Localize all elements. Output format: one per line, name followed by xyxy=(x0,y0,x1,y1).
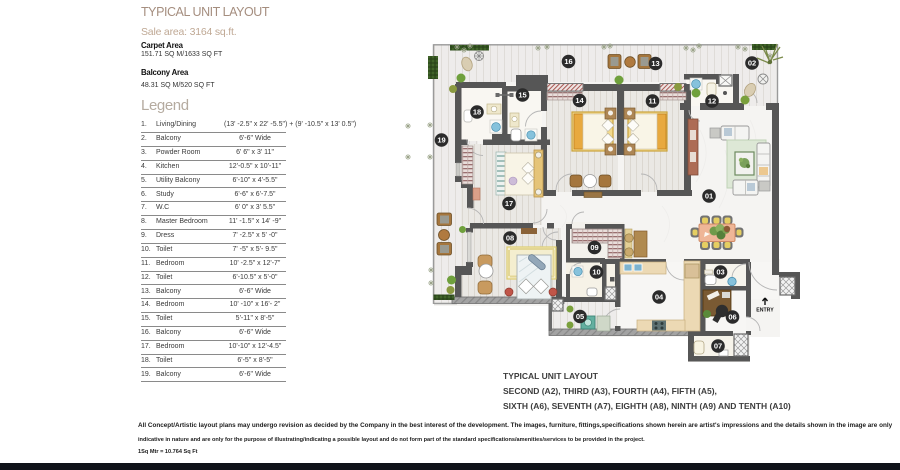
svg-text:13: 13 xyxy=(651,59,659,68)
svg-text:17: 17 xyxy=(505,199,513,208)
svg-text:05: 05 xyxy=(576,312,584,321)
svg-text:19: 19 xyxy=(437,136,445,145)
svg-text:06: 06 xyxy=(728,313,736,322)
svg-text:16: 16 xyxy=(564,57,572,66)
svg-text:11: 11 xyxy=(649,97,657,106)
svg-text:01: 01 xyxy=(705,192,713,201)
svg-text:18: 18 xyxy=(473,108,481,117)
svg-text:04: 04 xyxy=(655,293,664,302)
svg-text:12: 12 xyxy=(708,97,716,106)
svg-text:09: 09 xyxy=(590,243,598,252)
svg-text:10: 10 xyxy=(592,268,600,277)
svg-text:15: 15 xyxy=(518,91,526,100)
svg-text:02: 02 xyxy=(748,59,756,68)
svg-text:08: 08 xyxy=(506,234,514,243)
svg-text:07: 07 xyxy=(714,342,722,351)
svg-text:ENTRY: ENTRY xyxy=(756,308,774,314)
svg-text:14: 14 xyxy=(575,96,584,105)
svg-text:03: 03 xyxy=(716,268,724,277)
